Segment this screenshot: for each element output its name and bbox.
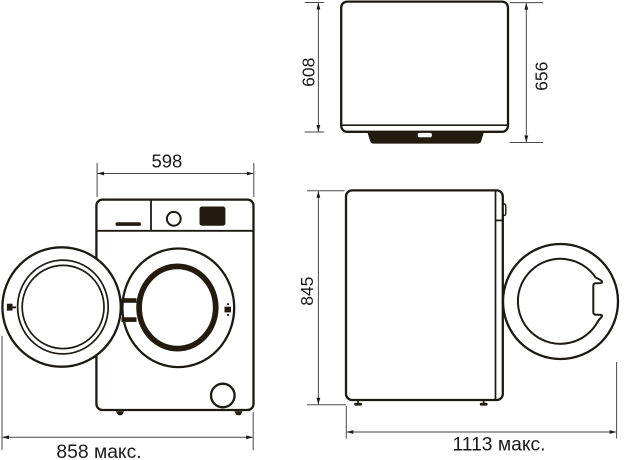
svg-text:1113 макс.: 1113 макс. [452,434,545,455]
svg-text:656: 656 [531,62,551,91]
svg-text:858 макс.: 858 макс. [56,442,141,460]
svg-text:608: 608 [298,58,318,87]
svg-text:598: 598 [151,151,182,172]
svg-text:845: 845 [297,277,317,306]
